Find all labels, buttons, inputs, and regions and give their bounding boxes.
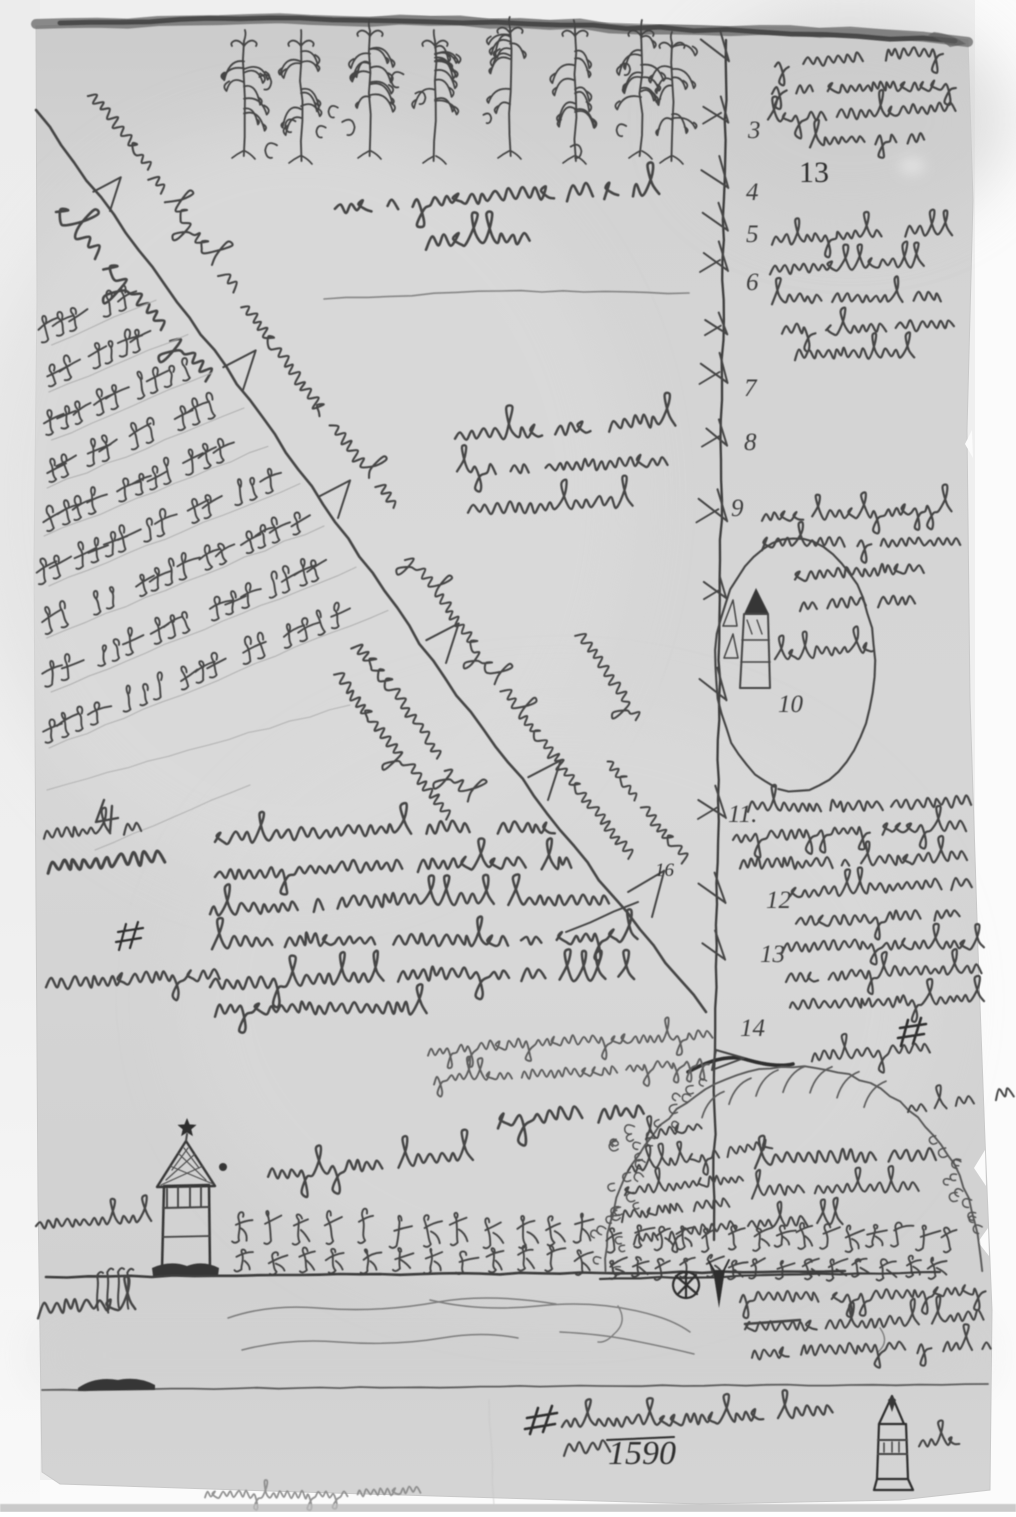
- svg-text:12: 12: [766, 887, 791, 914]
- svg-text:7: 7: [744, 375, 758, 402]
- svg-text:1590: 1590: [608, 1435, 676, 1472]
- svg-text:8: 8: [744, 429, 757, 456]
- svg-text:5: 5: [746, 221, 759, 248]
- svg-text:9: 9: [731, 495, 744, 522]
- svg-text:3: 3: [747, 117, 761, 144]
- svg-text:6: 6: [746, 269, 759, 296]
- svg-text:14: 14: [740, 1015, 765, 1042]
- svg-text:16: 16: [655, 860, 675, 881]
- svg-text:13: 13: [760, 941, 785, 968]
- svg-text:4: 4: [746, 179, 759, 206]
- svg-text:10: 10: [778, 691, 804, 718]
- svg-text:11.: 11.: [728, 801, 757, 828]
- svg-text:13: 13: [799, 156, 829, 189]
